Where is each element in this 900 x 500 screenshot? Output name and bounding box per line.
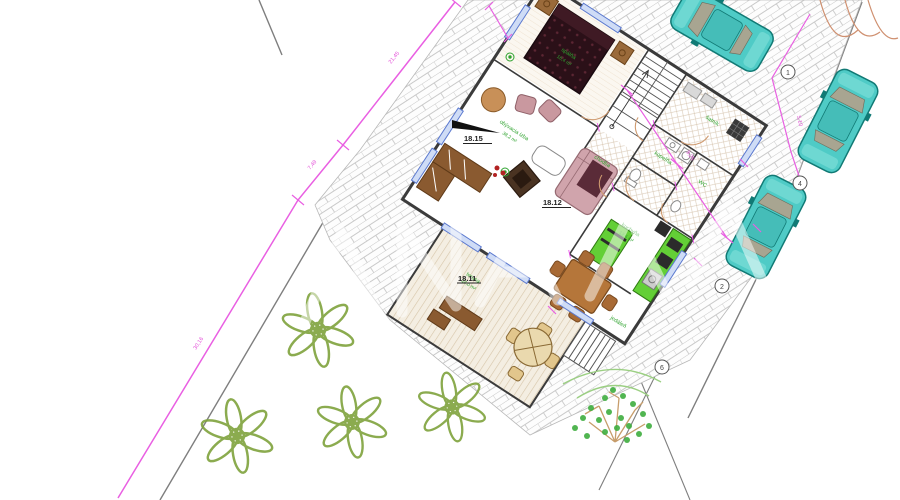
svg-text:2: 2 bbox=[720, 284, 724, 291]
survey-marker: 4 bbox=[793, 176, 807, 190]
tree-symbol-icon bbox=[316, 385, 388, 458]
level-label-living: 18.15 bbox=[464, 134, 483, 143]
survey-marker: 1 bbox=[781, 65, 795, 79]
site-plan-page: spálňa 16,4 m² šatník kúpeľňa WC chodba … bbox=[0, 0, 900, 500]
site-plan-drawing: spálňa 16,4 m² šatník kúpeľňa WC chodba … bbox=[0, 0, 900, 500]
svg-text:1: 1 bbox=[786, 70, 790, 77]
boundary-segment-west bbox=[160, 185, 345, 500]
level-label-terrace: 18.11 bbox=[458, 274, 476, 283]
dim-label-2: 7,49 bbox=[307, 159, 318, 171]
level-label-hall: 18.12 bbox=[543, 198, 562, 207]
svg-text:6: 6 bbox=[660, 365, 664, 372]
survey-marker: 2 bbox=[715, 279, 729, 293]
svg-text:4: 4 bbox=[798, 181, 802, 188]
boundary-segment-topleft bbox=[259, 0, 282, 55]
tree-symbol-icon bbox=[200, 398, 275, 474]
survey-marker: 6 bbox=[655, 360, 669, 374]
dim-label-1: 21,45 bbox=[388, 51, 401, 66]
dim-label-3: 30,16 bbox=[193, 336, 206, 351]
